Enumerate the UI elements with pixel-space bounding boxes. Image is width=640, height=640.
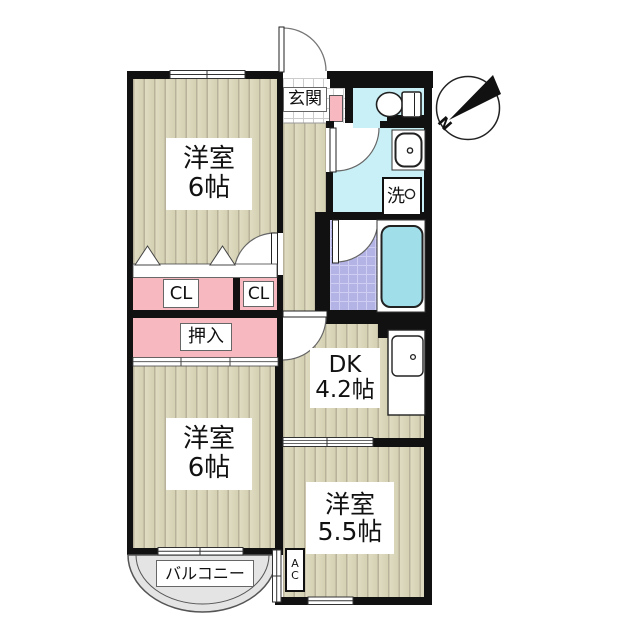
room-western3-label: 洋室 5.5帖: [306, 482, 394, 554]
compass-icon: N: [434, 75, 501, 140]
kitchen-sink-icon: [388, 330, 425, 415]
closet-right-label: CL: [243, 281, 274, 307]
bathroom-door-leaf: [333, 220, 339, 263]
room-western1-label: 洋室 6帖: [166, 138, 252, 210]
window-room1-top: [170, 71, 245, 79]
entrance-label: 玄関: [283, 87, 327, 112]
bathroom-door-swing: [336, 220, 378, 262]
balcony-label: バルコニー: [156, 560, 254, 587]
dk-door-leaf: [283, 311, 327, 317]
washbasin-icon: [392, 130, 425, 170]
entrance-door-leaf: [279, 27, 284, 72]
opening-dk-room3: [283, 438, 373, 447]
oshiire-label: 押入: [180, 323, 232, 351]
floorplan-canvas: 洗: [0, 0, 640, 640]
ac-unit-label: A C: [285, 548, 305, 592]
toilet-icon: [377, 92, 422, 117]
oshiire-sliding-doors: [133, 358, 278, 367]
window-room3-bottom: [308, 597, 353, 605]
window-room3-left: [273, 550, 282, 602]
washroom-door-leaf: [330, 128, 336, 172]
room-dk-label: DK 4.2帖: [310, 348, 380, 408]
bathtub-icon: [377, 220, 425, 312]
room-western2-label: 洋室 6帖: [166, 418, 252, 490]
washroom-door-swing: [336, 128, 379, 171]
window-room2-bottom: [158, 548, 243, 556]
entrance-door-arc: [283, 28, 326, 71]
closet-left-label: CL: [163, 279, 199, 308]
laundry-drain-icon: [405, 189, 414, 198]
